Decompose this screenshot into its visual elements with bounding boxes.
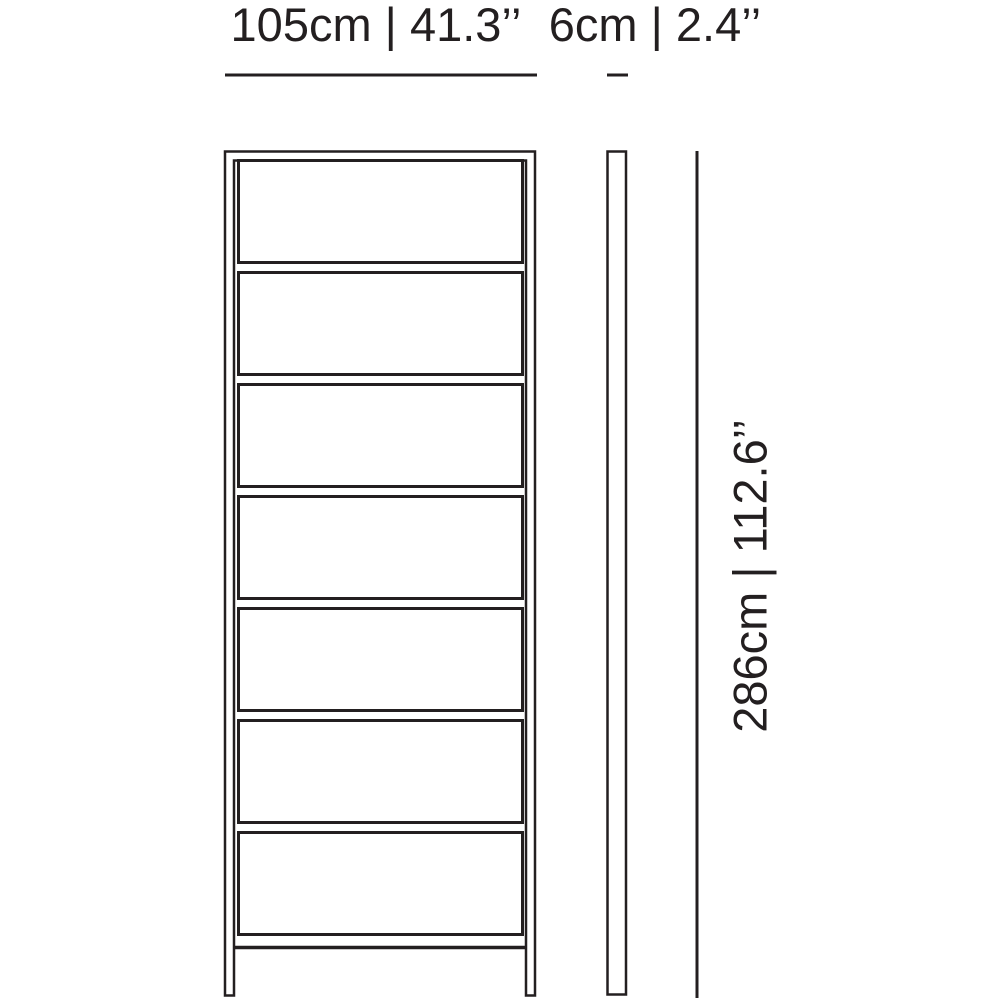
shelf-panel — [239, 161, 523, 263]
shelf-panel — [239, 833, 523, 935]
dimension-diagram: 105cm | 41.3’’ 6cm | 2.4’’ 286cm | 112.6… — [0, 0, 1000, 1000]
shelf-panel — [239, 497, 523, 599]
shelf-panel — [239, 609, 523, 711]
shelf-line-art — [0, 0, 1000, 1000]
shelf-panel — [239, 385, 523, 487]
shelf-panel — [239, 273, 523, 375]
front-view-shelves — [239, 161, 523, 935]
shelf-panel — [239, 721, 523, 823]
side-view-profile — [608, 152, 627, 995]
